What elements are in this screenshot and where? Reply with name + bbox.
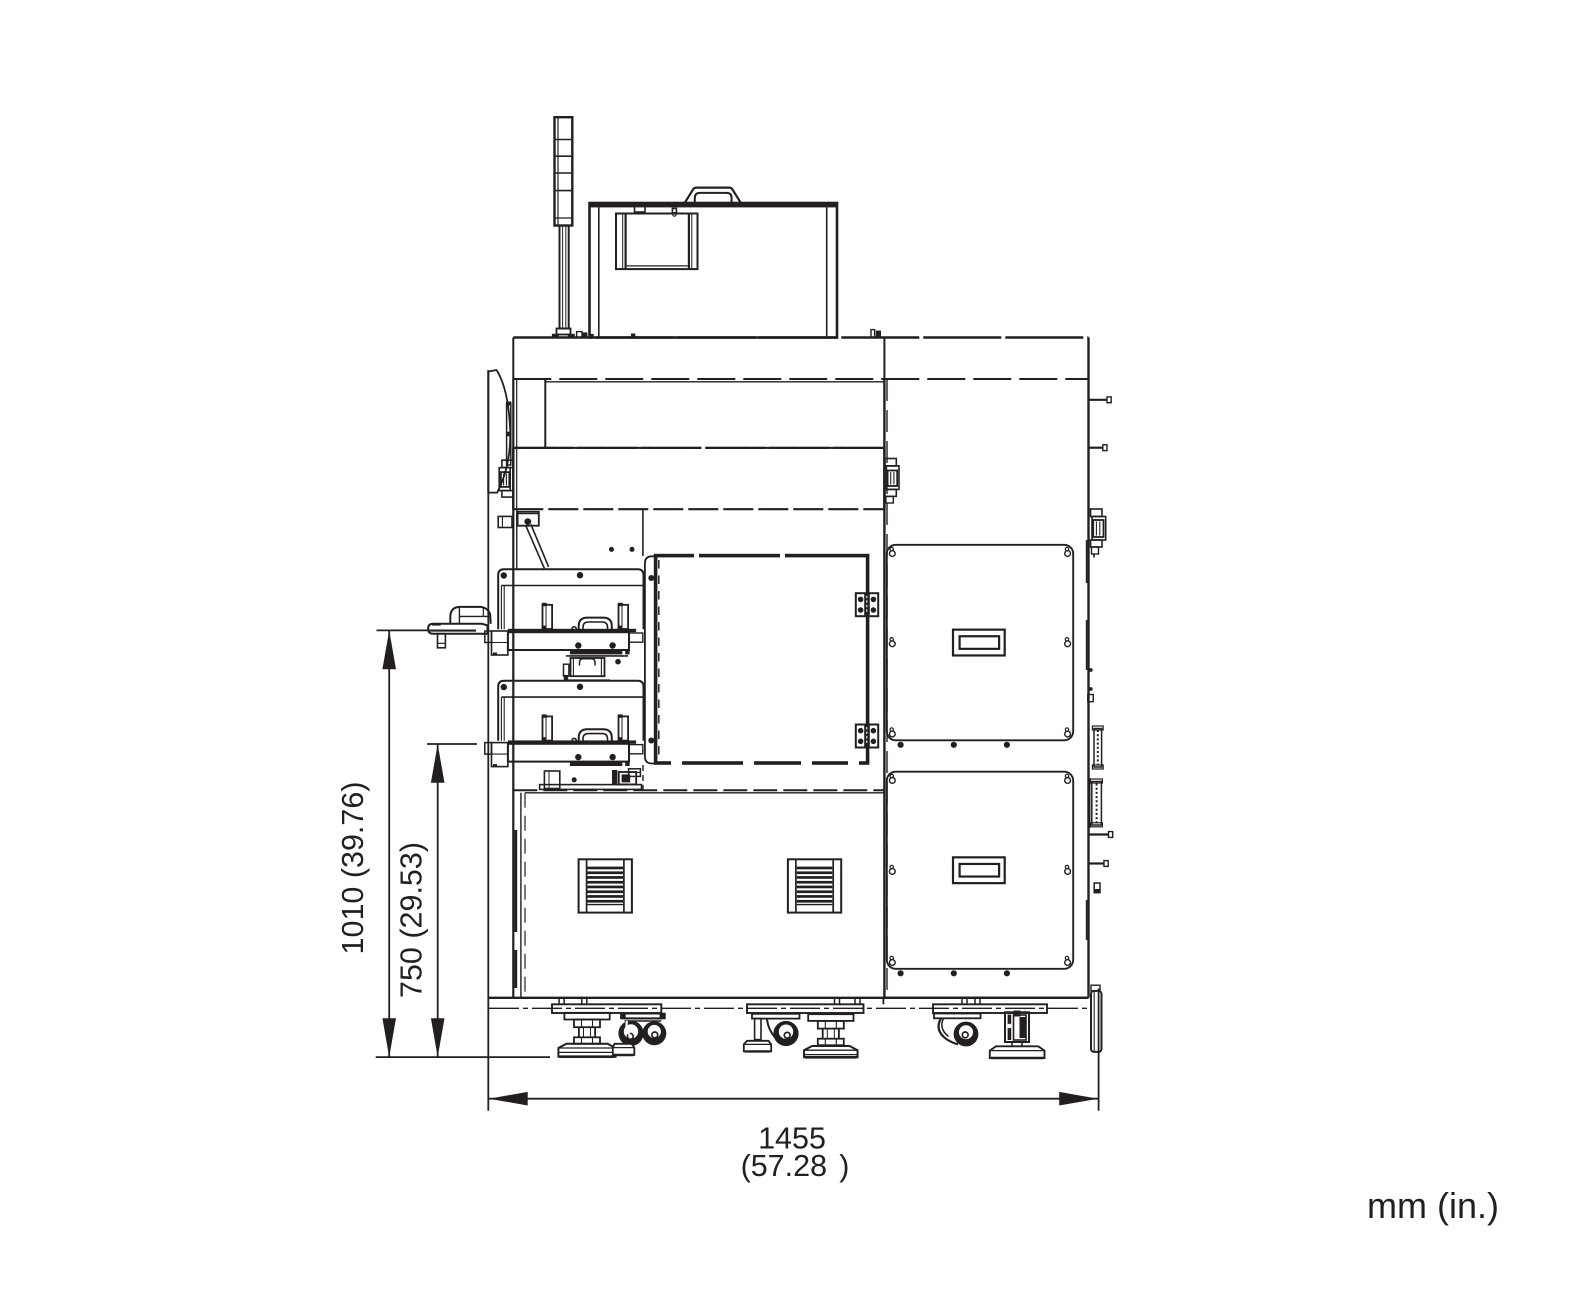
svg-text:(57.28 ): (57.28 ) <box>741 1149 850 1183</box>
svg-text:750 (29.53): 750 (29.53) <box>395 842 429 998</box>
svg-text:mm (in.): mm (in.) <box>1367 1185 1499 1226</box>
svg-text:1010 (39.76): 1010 (39.76) <box>336 782 370 955</box>
